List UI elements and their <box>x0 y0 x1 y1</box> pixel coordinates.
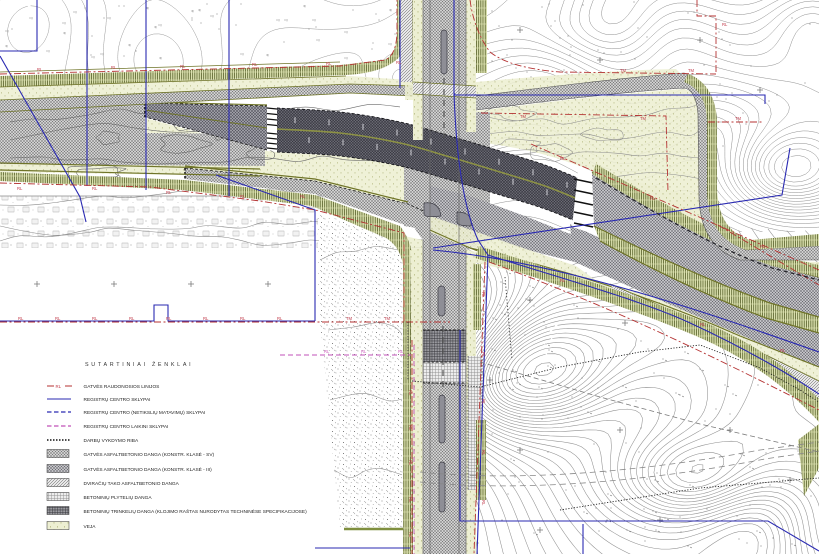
svg-text:RL: RL <box>300 194 306 199</box>
svg-text:VEJA: VEJA <box>84 524 97 530</box>
svg-text:SUTARTINIAI ŽENKLAI: SUTARTINIAI ŽENKLAI <box>85 360 193 368</box>
svg-text:RL: RL <box>55 316 61 321</box>
svg-text:RL: RL <box>408 390 413 396</box>
svg-text:REGISTRŲ CENTRO LAIKINI SKLYPA: REGISTRŲ CENTRO LAIKINI SKLYPAI <box>84 424 169 430</box>
svg-text:RL: RL <box>326 61 332 66</box>
svg-text:RL: RL <box>17 186 23 191</box>
svg-text:RL: RL <box>240 194 246 199</box>
svg-text:RL: RL <box>252 62 258 67</box>
svg-text:RL: RL <box>722 22 728 27</box>
svg-text:RL: RL <box>481 450 486 456</box>
svg-text:RL: RL <box>111 65 117 70</box>
svg-text:GATVĖS RAUDONOSIOS LINIJOS: GATVĖS RAUDONOSIOS LINIJOS <box>84 383 160 390</box>
svg-text:RL: RL <box>408 532 413 538</box>
svg-text:RL: RL <box>560 156 566 161</box>
svg-text:RL: RL <box>700 322 706 327</box>
svg-text:RL: RL <box>92 316 98 321</box>
svg-text:RL: RL <box>180 64 186 69</box>
svg-text:RL: RL <box>481 399 486 405</box>
svg-text:RL: RL <box>129 316 135 321</box>
svg-text:RL: RL <box>56 384 62 389</box>
svg-text:RL: RL <box>18 316 24 321</box>
svg-text:REGISTRŲ CENTRO SKLYPAI: REGISTRŲ CENTRO SKLYPAI <box>84 397 151 403</box>
svg-text:RL: RL <box>277 316 283 321</box>
svg-text:RL: RL <box>780 348 786 353</box>
svg-text:DVIRAČIŲ TAKO ASFALTBETONIO DA: DVIRAČIŲ TAKO ASFALTBETONIO DANGA <box>84 480 180 487</box>
svg-text:RL: RL <box>37 67 43 72</box>
svg-text:GATVĖS ASFALTBETONIO DANGA (KO: GATVĖS ASFALTBETONIO DANGA (KONSTR. KLAS… <box>84 451 215 458</box>
svg-text:RL: RL <box>203 316 209 321</box>
svg-text:RL: RL <box>408 497 413 503</box>
svg-text:RL: RL <box>324 349 330 354</box>
svg-text:RL: RL <box>166 190 172 195</box>
svg-text:TM: TM <box>640 116 647 121</box>
svg-text:TM: TM <box>520 114 527 119</box>
svg-text:RL: RL <box>481 352 486 358</box>
svg-text:RL: RL <box>361 349 367 354</box>
svg-text:REGISTRŲ CENTRO (NETIKSLIŲ MAT: REGISTRŲ CENTRO (NETIKSLIŲ MATAVIMŲ) SKL… <box>84 410 206 416</box>
svg-text:GATVĖS ASFALTBETONIO DANGA (KO: GATVĖS ASFALTBETONIO DANGA (KONSTR. KLAS… <box>84 466 213 473</box>
svg-text:RL: RL <box>760 244 766 249</box>
svg-text:RL: RL <box>396 60 402 65</box>
svg-text:TM: TM <box>346 316 353 321</box>
svg-text:RL: RL <box>166 316 172 321</box>
svg-text:RL: RL <box>240 316 246 321</box>
svg-text:RL: RL <box>398 349 404 354</box>
svg-text:TM: TM <box>735 116 742 121</box>
svg-text:RL: RL <box>408 460 413 466</box>
svg-text:TM: TM <box>384 316 391 321</box>
svg-text:RL: RL <box>408 425 413 431</box>
svg-text:RL: RL <box>650 196 656 201</box>
svg-text:BETONINIŲ TRINKELIŲ DANGA (KLO: BETONINIŲ TRINKELIŲ DANGA (KLOJIMO RAŠTA… <box>84 508 308 515</box>
svg-text:RL: RL <box>481 500 486 506</box>
svg-text:RL: RL <box>481 292 486 298</box>
svg-text:RL: RL <box>560 278 566 283</box>
svg-text:RL: RL <box>92 186 98 191</box>
svg-text:TM: TM <box>620 68 627 73</box>
svg-text:BETONINIŲ PLYTELIŲ DANGA: BETONINIŲ PLYTELIŲ DANGA <box>84 495 153 501</box>
svg-text:DARBŲ VYKDYMO RIBA: DARBŲ VYKDYMO RIBA <box>84 438 139 444</box>
svg-text:TM: TM <box>688 68 695 73</box>
